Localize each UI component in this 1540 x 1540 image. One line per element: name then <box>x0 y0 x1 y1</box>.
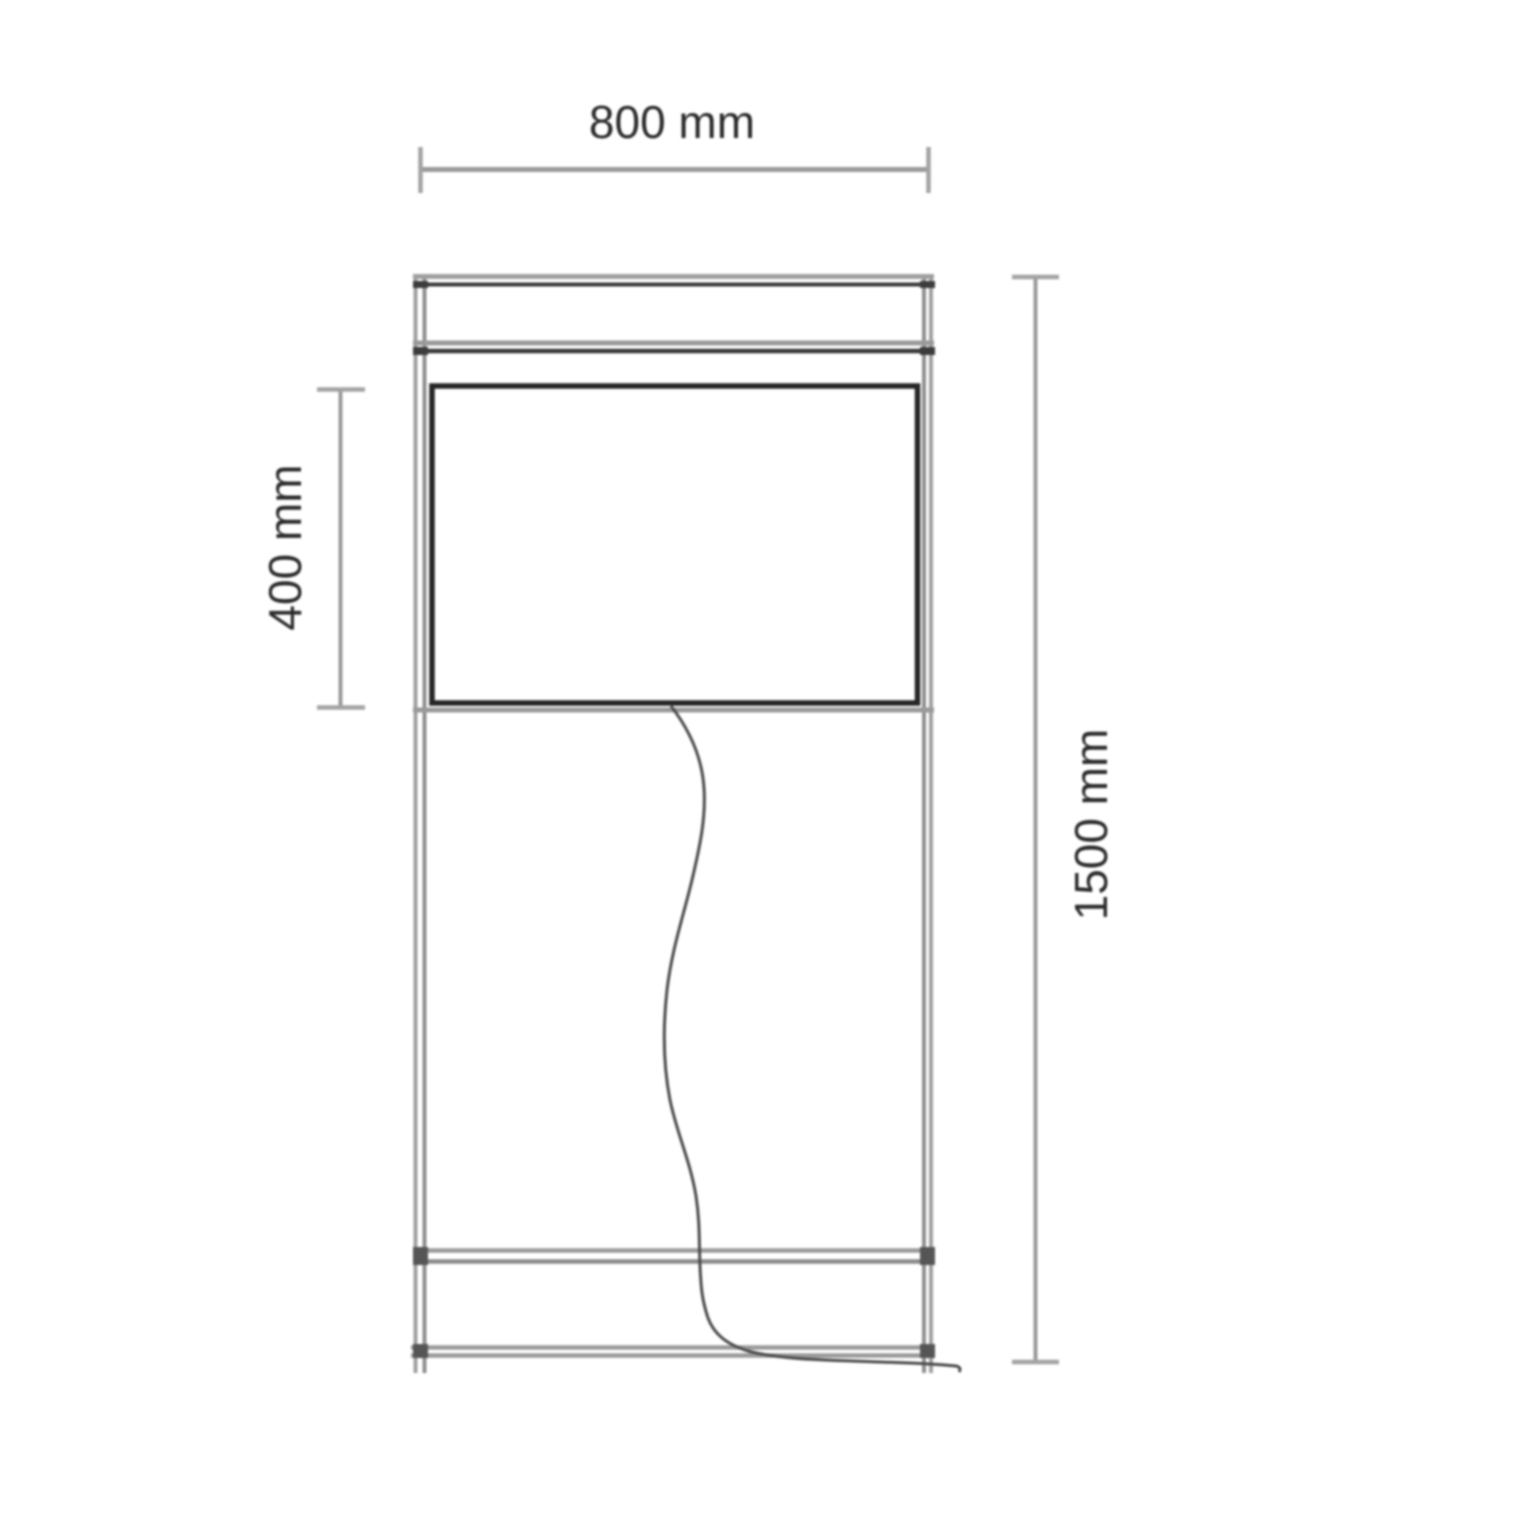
svg-text:1500 mm: 1500 mm <box>1065 729 1117 921</box>
svg-text:400 mm: 400 mm <box>259 464 311 630</box>
svg-text:800 mm: 800 mm <box>589 96 755 148</box>
